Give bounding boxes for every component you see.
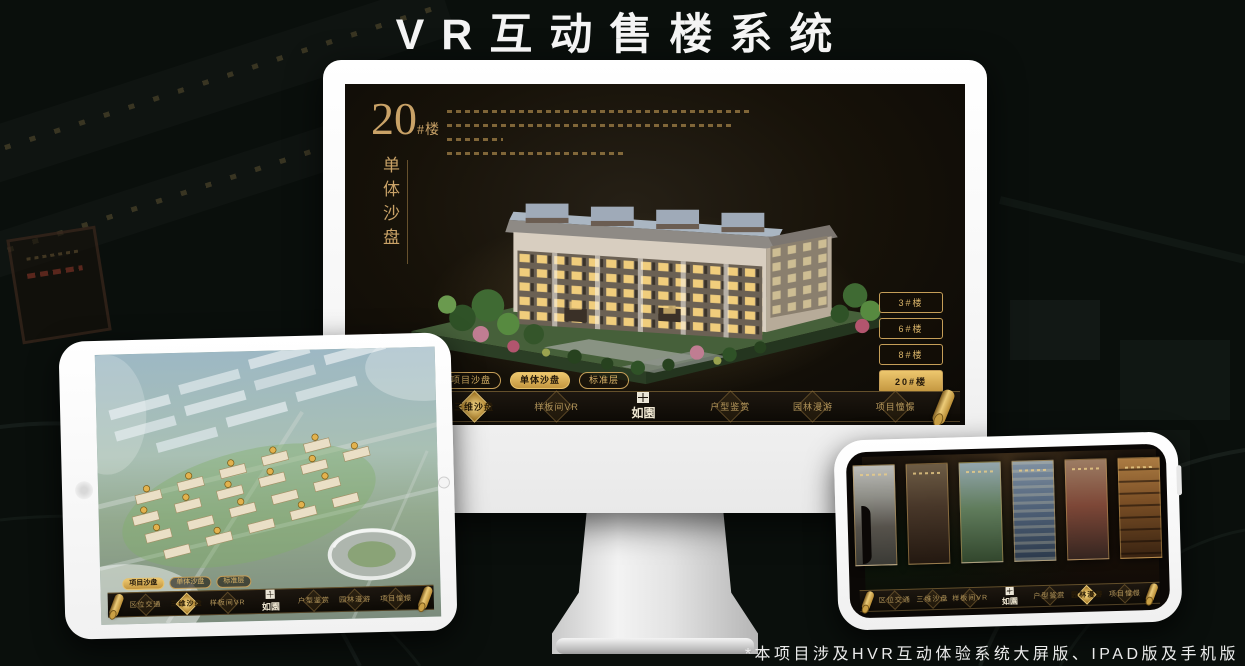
home-button[interactable] <box>438 476 450 488</box>
nav-logo: 如園 <box>598 392 689 421</box>
gallery-card-garden[interactable] <box>959 461 1004 563</box>
tab-project-sandtable[interactable]: 项目沙盘 <box>122 577 164 590</box>
tab-standard-floor[interactable]: 标准层 <box>579 372 629 389</box>
monitor-stand-base <box>556 638 754 654</box>
phone-screen: 区位交通 三维沙盘 样板间VR 如園 户型鉴赏 园林漫游 项目憧憬 <box>846 444 1171 619</box>
nav-item-garden-tour[interactable]: 园林漫游 <box>1068 584 1106 605</box>
tab-standard-floor[interactable]: 标准层 <box>216 575 251 588</box>
floor-button-group: 3#楼 6#楼 8#楼 20#楼 <box>879 292 943 393</box>
nav-item-location[interactable]: 区位交通 <box>125 592 167 616</box>
scroll-icon[interactable] <box>861 590 875 612</box>
nav-item-project-vision[interactable]: 项目憧憬 <box>375 586 417 610</box>
scene-gallery <box>853 457 1163 567</box>
nav-item-showroom-vr[interactable]: 样板间VR <box>515 392 598 421</box>
floor-button-3[interactable]: 3#楼 <box>879 292 943 313</box>
nav-item-unit-plans[interactable]: 户型鉴赏 <box>1030 585 1068 606</box>
gallery-card-interior[interactable] <box>906 463 951 565</box>
nav-logo: 如園 <box>248 589 294 613</box>
nav-item-project-vision[interactable]: 项目憧憬 <box>854 392 937 421</box>
nav-item-garden-tour[interactable]: 园林漫游 <box>334 587 376 611</box>
background-plaque <box>6 226 111 345</box>
tablet-bezel: 项目沙盘 单体沙盘 标准层 区位交通 三维沙盘 样板间VR 如園 户型鉴赏 园林… <box>58 332 457 639</box>
tab-single-sandtable[interactable]: 单体沙盘 <box>510 372 570 389</box>
floor-button-6[interactable]: 6#楼 <box>879 318 943 339</box>
scroll-icon[interactable] <box>108 592 125 618</box>
nav-item-3d-sandtable[interactable]: 三维沙盘 <box>166 591 208 615</box>
monitor-view-tabs: 项目沙盘 单体沙盘 标准层 <box>441 372 629 389</box>
notch <box>861 506 872 564</box>
floor-button-8[interactable]: 8#楼 <box>879 344 943 365</box>
phone-bezel: 区位交通 三维沙盘 样板间VR 如園 户型鉴赏 园林漫游 项目憧憬 <box>833 431 1182 631</box>
nav-item-project-vision[interactable]: 项目憧憬 <box>1106 583 1144 604</box>
nav-item-location[interactable]: 区位交通 <box>876 590 914 611</box>
seal-icon <box>1006 587 1014 595</box>
phone-device: 区位交通 三维沙盘 样板间VR 如園 户型鉴赏 园林漫游 项目憧憬 <box>833 431 1182 631</box>
nav-item-3d-sandtable[interactable]: 三维沙盘 <box>913 589 951 610</box>
building-model-image[interactable] <box>391 150 901 400</box>
tab-single-sandtable[interactable]: 单体沙盘 <box>169 576 211 589</box>
page-title: VR互动售楼系统 <box>0 0 1245 62</box>
nav-item-garden-tour[interactable]: 园林漫游 <box>772 392 855 421</box>
seal-icon <box>637 392 649 403</box>
scroll-icon[interactable] <box>417 585 434 611</box>
nav-item-unit-plans[interactable]: 户型鉴赏 <box>689 392 772 421</box>
nav-item-showroom-vr[interactable]: 样板间VR <box>951 588 989 609</box>
nav-item-showroom-vr[interactable]: 样板间VR <box>207 590 249 614</box>
nav-item-unit-plans[interactable]: 户型鉴赏 <box>293 588 335 612</box>
side-button[interactable] <box>1176 465 1182 495</box>
scroll-icon[interactable] <box>1145 582 1159 604</box>
building-number-heading: 20#楼 <box>371 96 440 142</box>
seal-icon <box>266 590 275 599</box>
gallery-card-autumn[interactable] <box>1065 458 1110 560</box>
floor-button-20[interactable]: 20#楼 <box>879 370 943 393</box>
gallery-card-courtyard[interactable] <box>853 464 898 566</box>
camera-icon <box>75 481 93 499</box>
footnote-caption: *本项目涉及HVR互动体验系统大屏版、IPAD版及手机版 <box>745 640 1239 664</box>
tablet-screen: 项目沙盘 单体沙盘 标准层 区位交通 三维沙盘 样板间VR 如園 户型鉴赏 园林… <box>95 347 441 625</box>
nav-logo: 如園 <box>989 586 1031 607</box>
gallery-card-lounge[interactable] <box>1118 457 1163 559</box>
tablet-device: 项目沙盘 单体沙盘 标准层 区位交通 三维沙盘 样板间VR 如園 户型鉴赏 园林… <box>58 332 457 639</box>
gallery-card-building[interactable] <box>1012 460 1057 562</box>
